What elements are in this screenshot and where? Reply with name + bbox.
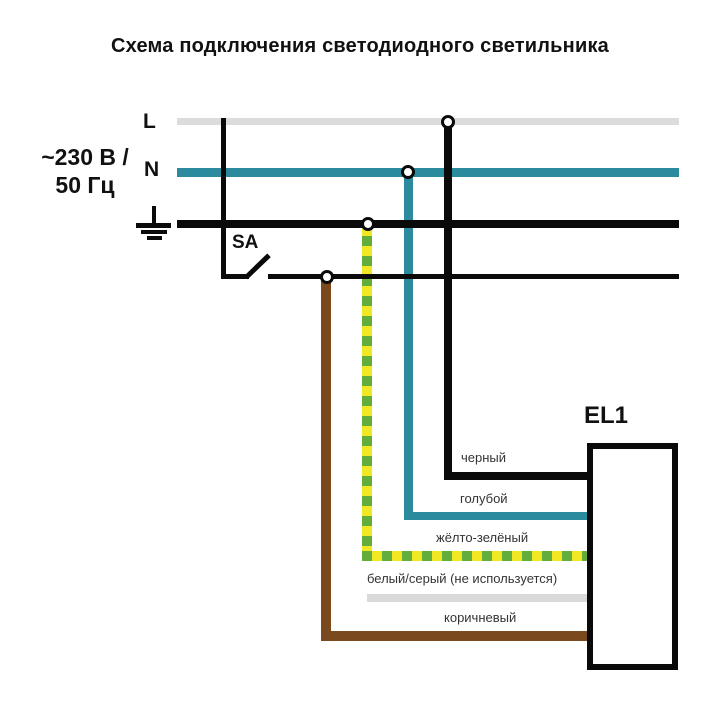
junction-node-phase [441,115,455,129]
white-gray-wire-stub [367,594,590,602]
phase-l-label: L [143,110,156,134]
luminaire-el1-label: EL1 [584,402,628,430]
wire-label-yellow-green: жёлто-зелёный [436,530,528,545]
junction-node-switched [320,270,334,284]
ground-icon-bar [141,230,167,234]
switch-feed-line [221,118,226,278]
black-wire-horizontal [444,472,590,480]
yellow-green-wire-horizontal [362,551,590,561]
ground-icon-bar [147,236,162,240]
wire-label-blue: голубой [460,491,508,506]
neutral-n-label: N [144,158,159,182]
voltage-line-2: 50 Гц [25,171,145,199]
blue-wire-horizontal [404,512,590,520]
luminaire-el1-box [587,443,678,670]
wire-label-black: черный [461,450,506,465]
wiring-diagram: Схема подключения светодиодного светильн… [0,0,720,720]
wire-label-white-gray: белый/серый (не используется) [367,571,557,586]
wire-label-brown: коричневый [444,610,516,625]
voltage-line-1: ~230 В / [25,143,145,171]
black-wire-vertical [444,122,452,480]
phase-l-bus-line [177,118,679,125]
diagram-title: Схема подключения светодиодного светильн… [0,35,720,58]
brown-wire-vertical [321,279,331,641]
junction-node-neutral [401,165,415,179]
pe-ground-bus-line [177,220,679,228]
switch-sa-label: SA [232,232,258,254]
source-voltage-label: ~230 В / 50 Гц [25,143,145,199]
junction-node-pe [361,217,375,231]
ground-icon-bar [136,223,171,228]
neutral-n-bus-line [177,168,679,177]
switch-blade [244,253,270,279]
brown-wire-horizontal [321,631,590,641]
